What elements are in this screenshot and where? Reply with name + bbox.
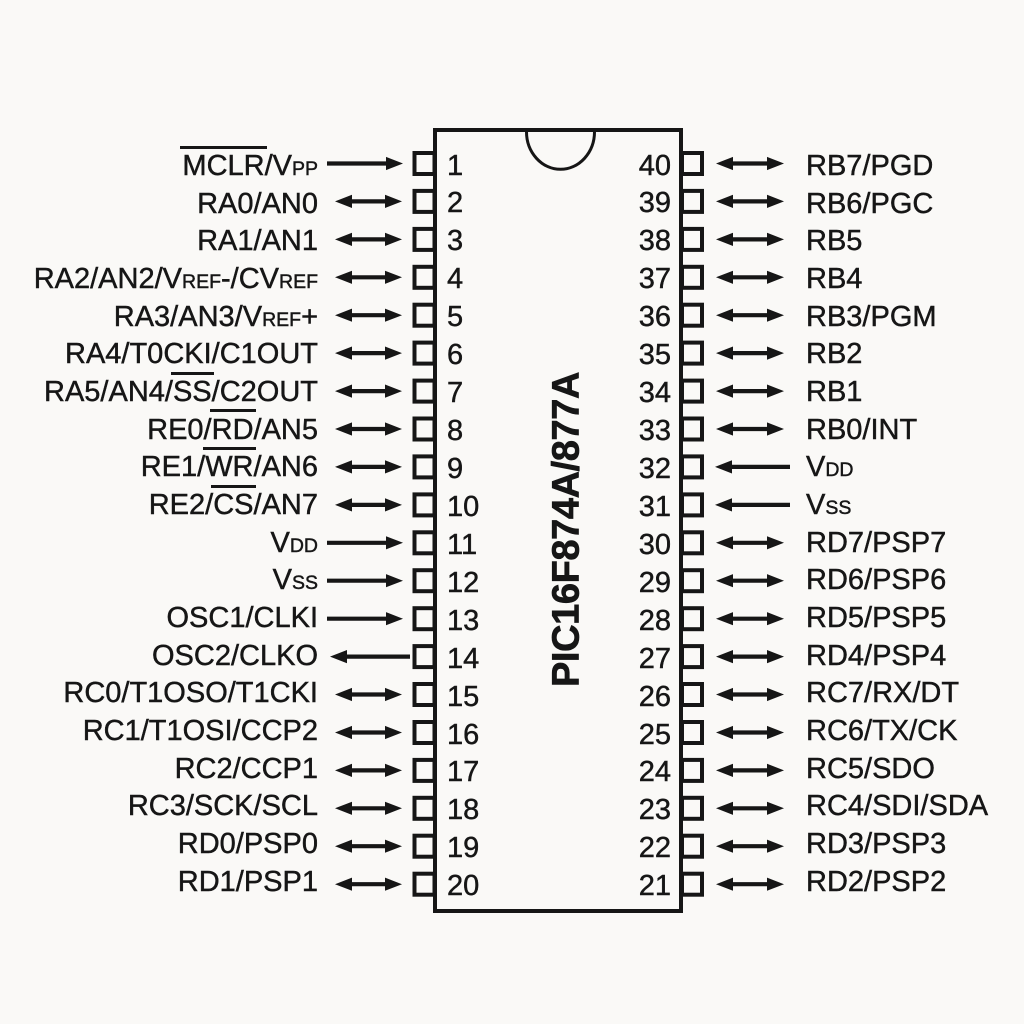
svg-text:PIC16F874A/877A: PIC16F874A/877A	[546, 372, 588, 687]
